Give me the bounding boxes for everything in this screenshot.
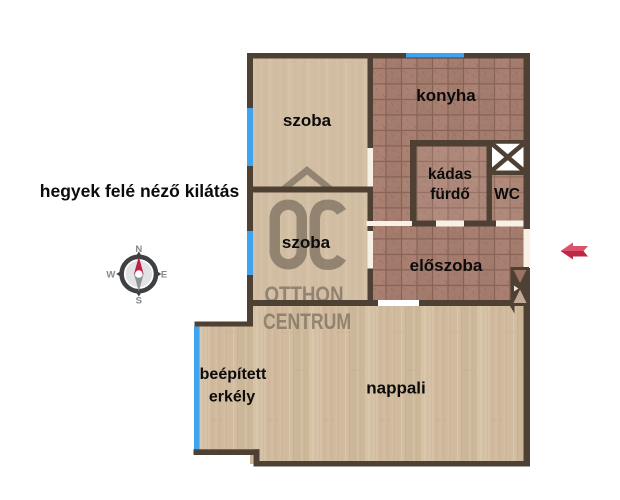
- svg-text:szoba: szoba: [283, 111, 332, 130]
- svg-text:E: E: [161, 270, 167, 281]
- svg-text:beépített: beépített: [200, 366, 267, 383]
- svg-text:W: W: [106, 270, 115, 281]
- svg-text:kádas: kádas: [428, 166, 472, 183]
- svg-text:S: S: [136, 296, 142, 307]
- svg-text:N: N: [135, 244, 142, 255]
- svg-text:nappali: nappali: [366, 379, 426, 398]
- svg-text:szoba: szoba: [282, 233, 331, 252]
- svg-text:WC: WC: [494, 186, 520, 203]
- svg-text:konyha: konyha: [416, 86, 476, 105]
- svg-text:erkély: erkély: [209, 389, 255, 406]
- svg-text:előszoba: előszoba: [410, 256, 483, 275]
- svg-text:CENTRUM: CENTRUM: [263, 309, 351, 334]
- svg-text:hegyek felé néző kilátás: hegyek felé néző kilátás: [40, 181, 240, 201]
- svg-text:fürdő: fürdő: [430, 186, 470, 203]
